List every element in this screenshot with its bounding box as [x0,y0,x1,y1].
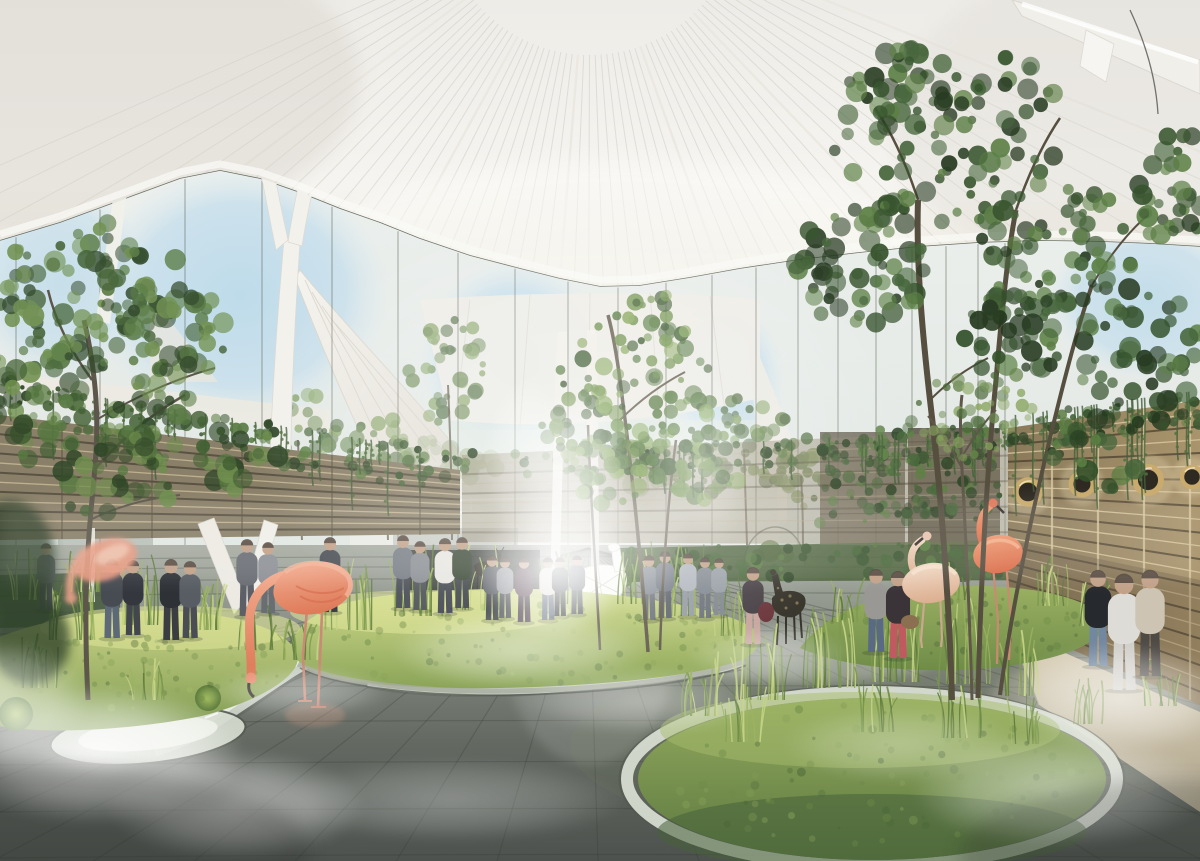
foliage-blob [767,798,770,801]
center-glare [245,200,925,660]
hedge-leaf [994,428,999,433]
foliage-blob [40,442,56,458]
foliage-blob [1156,390,1178,412]
foliage-blob [55,241,65,251]
foliage-blob [1176,128,1191,143]
foliage-blob [1074,633,1078,637]
foliage-blob [838,104,859,125]
foliage-blob [156,297,178,319]
foliage-blob [1017,78,1038,99]
foliage-blob [7,244,23,260]
visitor-torso [1108,593,1140,644]
foliage-blob [1132,416,1144,428]
foliage-blob [146,671,151,676]
foliage-blob [175,687,180,692]
vine-leaf [1137,435,1140,438]
foliage-blob [822,238,832,248]
foliage-blob [954,96,969,111]
foliage-blob [163,482,172,491]
foliage-blob [1014,289,1028,303]
foliage-blob [956,330,973,347]
foliage-blob [953,437,964,448]
vine-leaf [983,449,986,452]
foliage-blob [840,702,847,709]
foliage-blob [1044,84,1063,103]
visitor-torso [1085,586,1112,628]
foliage-blob [873,105,888,120]
foliage-blob [260,651,267,658]
foliage-blob [1123,258,1139,274]
vine-leaf [1143,415,1146,418]
foliage-blob [934,115,955,136]
foliage-blob [67,291,80,304]
foliage-blob [837,826,840,829]
foliage-blob [75,456,94,475]
foliage-blob [173,676,179,682]
foliage-blob [129,356,139,366]
foliage-blob [982,300,998,316]
foliage-blob [650,660,656,666]
foliage-blob [922,822,930,830]
foliage-blob [99,442,119,462]
foliage-blob [1074,229,1088,243]
foliage-blob [1053,642,1061,650]
foliage-blob [729,789,736,796]
foliage-blob [986,247,995,256]
foliage-blob [1077,374,1088,385]
vine-leaf [1045,415,1048,418]
hedge-leaf [1117,427,1125,435]
foliage-blob [755,741,760,746]
foliage-blob [120,672,126,678]
foliage-blob [952,208,961,217]
foliage-blob [746,789,754,797]
foliage-blob [937,435,943,441]
foliage-blob [93,222,107,236]
foliage-blob [894,213,915,234]
visitor-leg [193,604,194,638]
foliage-blob [98,332,108,342]
foliage-blob [751,781,760,790]
foliage-blob [1075,292,1090,307]
visitor-shadow [256,611,280,616]
aviary-rendering-stage [0,0,1200,861]
foliage-blob [939,411,946,418]
foliage-blob [143,645,149,651]
foliage-blob [1087,408,1108,429]
foliage-blob [1077,457,1087,467]
foliage-blob [96,434,105,443]
foliage-blob [1172,181,1192,201]
foliage-blob [976,233,988,245]
foliage-blob [883,125,891,133]
foliage-blob [762,817,768,823]
vine-leaf [979,438,982,441]
visitor-torso [1135,588,1164,634]
foliage-blob [1041,270,1053,282]
vine-leaf [1176,445,1179,448]
foliage-blob [849,268,869,288]
foliage-blob [123,318,145,340]
vine-leaf [1079,416,1082,419]
foliage-blob [1124,382,1142,400]
foliage-blob [943,444,952,453]
foliage-blob [52,461,73,482]
foliage-blob [1113,306,1127,320]
vine-leaf [1135,448,1138,451]
foliage-blob [1001,598,1004,601]
foliage-blob [997,154,1012,169]
vine-leaf [1003,435,1006,438]
foliage-blob [1059,227,1067,235]
foliage-blob [938,169,946,177]
foliage-blob [886,258,903,275]
foliage-blob [1170,295,1187,312]
foliage-blob [770,794,773,797]
foliage-blob [219,346,227,354]
foliage-blob [1042,318,1062,338]
foliage-blob [1001,336,1017,352]
foliage-blob [193,452,209,468]
foliage-blob [101,298,114,311]
foliage-blob [144,331,156,343]
foliage-blob [92,462,104,474]
foliage-blob [209,422,230,443]
foliage-blob [1143,155,1162,174]
foliage-blob [180,356,197,373]
foliage-blob [1023,618,1029,624]
foliage-blob [1065,612,1069,616]
visitor-leg [871,615,872,652]
foliage-blob [705,743,709,747]
hedge-leaf [951,495,957,501]
vine-leaf [1184,420,1187,423]
foliage-blob [1047,645,1054,652]
foliage-blob [867,799,875,807]
foliage-blob [1067,194,1081,208]
foliage-blob [879,292,897,310]
foliage-blob [1033,98,1048,113]
foliage-blob [179,413,191,425]
foliage-blob [45,359,63,377]
foliage-blob [846,81,867,102]
foliage-blob [233,469,253,489]
foliage-blob [782,715,790,723]
foliage-blob [958,148,969,159]
foliage-blob [213,312,234,333]
foliage-blob [0,280,15,296]
foliage-blob [1180,328,1199,347]
foliage-blob [977,380,987,390]
foliage-blob [874,208,893,227]
vine-leaf [1184,450,1187,453]
foliage-blob [381,673,389,681]
foliage-blob [692,806,696,810]
hedge-leaf [941,457,954,470]
vine-leaf [1004,440,1007,443]
foliage-blob [191,653,198,660]
foliage-blob [187,687,193,693]
foliage-blob [998,398,1010,410]
foliage-blob [989,613,993,617]
foliage-blob [43,400,54,411]
vine-strand [1033,413,1034,492]
foliage-blob [1043,617,1051,625]
aviary-interior-rendering [0,0,1200,861]
visitor-leg [136,602,137,635]
vine-leaf [1141,458,1144,461]
hedge-leaf [945,470,951,476]
foliage-blob [1176,381,1198,403]
foliage-blob [915,181,936,202]
grass-blade [217,578,218,630]
foliage-blob [375,634,382,641]
vine-leaf [173,433,176,436]
foliage-blob [970,450,979,459]
foliage-blob [5,426,24,445]
hedge-leaf [966,487,977,498]
foliage-blob [1126,463,1139,476]
foliage-blob [183,289,199,305]
foliage-blob [103,666,107,670]
foliage-blob [108,642,113,647]
foliage-blob [905,114,926,135]
visitor-leg [129,602,130,635]
foliage-blob [1001,386,1010,395]
foliage-blob [113,401,126,414]
foliage-blob [883,226,895,238]
hedge-leaf [1018,432,1028,442]
foliage-blob [998,77,1013,92]
foliage-blob [5,359,27,381]
foliage-blob [73,229,83,239]
visitor-leg [243,582,244,616]
foliage-blob [790,778,795,783]
visitor-shadow [862,650,890,655]
foliage-blob [989,413,1000,424]
visitor-leg [893,619,894,658]
foliage-blob [47,411,61,425]
foliage-blob [108,269,126,287]
foliage-blob [933,54,952,73]
foliage-blob [1024,414,1031,421]
foliage-blob [985,442,993,450]
foliage-blob [196,439,210,453]
foliage-blob [119,449,133,463]
foliage-blob [148,374,167,393]
foliage-blob [159,465,167,473]
foliage-blob [996,110,1015,129]
vine-leaf [1189,430,1192,433]
foliage-blob [771,833,775,837]
foliage-blob [144,341,159,356]
foliage-blob [102,233,113,244]
foliage-blob [1074,257,1088,271]
foliage-blob [1008,259,1028,279]
foliage-blob [935,86,949,100]
foliage-blob [682,801,690,809]
visitor-shadow [99,636,126,641]
foliage-blob [921,815,925,819]
foliage-blob [971,416,983,428]
vine-leaf [1188,417,1191,420]
foliage-blob [676,787,685,796]
foliage-blob [844,163,863,182]
vine-leaf [952,464,955,467]
foliage-blob [59,394,73,408]
vine-strand [1046,411,1047,444]
foliage-blob [971,96,985,110]
foliage-blob [675,658,679,662]
foliage-blob [365,639,371,645]
porthole-window [1182,467,1200,487]
foliage-blob [744,800,749,805]
vine-leaf [982,433,985,436]
vine-leaf [972,447,975,450]
foliage-blob [1021,362,1030,371]
foliage-blob [962,382,974,394]
foliage-blob [65,437,78,450]
foliage-blob [998,50,1013,65]
visitor-leg [880,615,881,652]
visitor-leg [167,604,168,640]
vine-leaf [1012,434,1015,437]
foliage-blob [1045,449,1062,466]
foliage-blob [931,140,947,156]
foliage-blob [981,402,991,412]
vine-leaf [1012,474,1015,477]
foliage-blob [1009,368,1023,382]
vine-leaf [1145,472,1148,475]
foliage-blob [787,768,793,774]
foliage-blob [1095,370,1108,383]
foliage-blob [1117,352,1133,368]
vine-leaf [1144,453,1147,456]
foliage-blob [1076,313,1098,335]
foliage-blob [44,250,66,272]
foliage-blob [956,116,973,133]
foliage-blob [1064,615,1070,621]
foliage-blob [170,670,173,673]
foliage-blob [1021,237,1039,255]
foliage-blob [818,790,826,798]
foliage-blob [235,662,240,667]
foliage-blob [76,476,98,498]
foliage-blob [1063,184,1074,195]
visitor-leg [108,603,109,638]
foliage-blob [146,457,159,470]
vine-leaf [1124,418,1127,421]
vine-leaf [1129,449,1132,452]
foliage-blob [52,303,74,325]
foliage-blob [70,380,90,400]
foliage-blob [900,807,904,811]
vine-leaf [1030,427,1033,430]
foliage-blob [73,426,82,435]
foliage-blob [1150,224,1170,244]
foliage-blob [1072,624,1075,627]
visitor-shadow [120,633,145,638]
vine-leaf [1076,419,1079,422]
foliage-blob [932,379,941,388]
foliage-blob [107,651,110,654]
foliage-blob [165,249,186,270]
foliage-blob [1154,199,1163,208]
foliage-blob [1071,274,1082,285]
vine-leaf [1093,456,1096,459]
foliage-blob [159,345,181,367]
foliage-blob [156,645,160,649]
foliage-blob [852,840,858,846]
visitor-leg [116,603,117,638]
foliage-blob [1160,164,1171,175]
foliage-blob [1091,246,1103,258]
vine-strand [1074,407,1075,496]
foliage-blob [116,311,124,319]
vine-leaf [1123,458,1126,461]
hedge-leaf [996,438,1002,444]
foliage-blob [86,313,103,330]
vine-leaf [1030,475,1033,478]
foliage-blob [1052,351,1062,361]
foliage-blob [207,681,211,685]
foliage-blob [889,42,906,59]
foliage-blob [103,422,116,435]
hedge-leaf [943,458,948,463]
foliage-blob [1023,605,1027,609]
foliage-blob [1071,611,1079,619]
foliage-blob [133,382,141,390]
grass-blade [81,591,82,640]
foliage-blob [1114,397,1124,407]
foliage-blob [73,409,91,427]
foliage-blob [1074,331,1093,350]
foliage-blob [98,654,104,660]
foliage-blob [1021,57,1040,76]
foliage-blob [882,806,890,814]
foliage-blob [1177,408,1189,420]
foliage-blob [928,425,938,435]
vine-leaf [1174,432,1177,435]
foliage-blob [974,360,990,376]
foliage-blob [809,835,816,842]
foliage-blob [1002,421,1015,434]
foliage-blob [185,648,189,652]
vine-leaf [926,444,929,447]
foliage-blob [166,644,174,652]
foliage-blob [900,191,916,207]
foliage-blob [934,214,950,230]
foliage-blob [1118,278,1140,300]
foliage-blob [5,380,20,395]
vine-leaf [1138,410,1141,413]
vine-leaf [155,419,158,422]
foliage-blob [1173,154,1191,172]
foliage-blob [1159,127,1177,145]
foliage-blob [18,449,28,459]
vine-leaf [1029,443,1032,446]
foliage-blob [1181,214,1199,232]
foliage-blob [719,750,727,758]
vine-strand [1137,399,1138,463]
foliage-blob [223,457,237,471]
vine-leaf [971,466,974,469]
foliage-blob [917,263,931,277]
foliage-blob [1014,621,1020,627]
foliage-blob [860,781,865,786]
foliage-blob [770,800,775,805]
foliage-blob [1150,318,1170,338]
